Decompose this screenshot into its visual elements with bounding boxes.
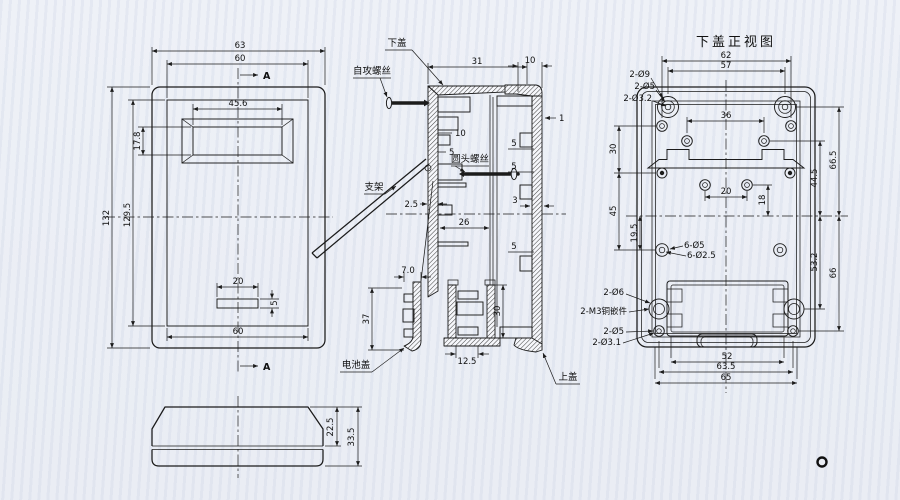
dim-45: 45 (609, 206, 619, 217)
label-bracket: 支架 (364, 181, 384, 193)
dim-45-6: 45.6 (229, 99, 248, 109)
dim-22-5: 22.5 (326, 418, 336, 437)
front-view: 63 60 A 45.6 17.8 132 129.5 20 5 60 (102, 41, 333, 374)
dim-66: 66 (829, 268, 839, 279)
dim-52: 52 (722, 352, 733, 362)
dim-33-5: 33.5 (347, 428, 357, 447)
label-6d25: 6-Ø2.5 (687, 250, 716, 261)
label-bottom-cover: 下盖 (387, 37, 407, 49)
enclosure-inner-outline (167, 100, 308, 326)
dim-57: 57 (721, 61, 732, 71)
dim-17-8: 17.8 (133, 132, 143, 151)
dim-37: 37 (362, 314, 372, 325)
dim-30-section: 30 (493, 306, 503, 317)
dim-63-5: 63.5 (717, 362, 736, 372)
label-2d32: 2-Ø3.2 (623, 93, 652, 104)
display-window-inner (193, 127, 282, 155)
bottom-view-title: 下盖正视图 (696, 35, 776, 50)
dim-44-5: 44.5 (810, 169, 820, 188)
label-round-head-screw: 圆头螺丝 (451, 153, 489, 165)
label-self-tapping-screw: 自攻螺丝 (353, 65, 391, 77)
dim-26: 26 (459, 218, 470, 228)
dim-132: 132 (102, 210, 112, 226)
section-view: 下盖 31 自攻螺丝 10 5 圆头螺丝 支架 2.5 26 7.0 37 电池… (312, 37, 580, 384)
dim-tc-10: 10 (525, 56, 536, 66)
dim-tc-1: 1 (559, 114, 564, 124)
label-2m3-insert: 2-M3铜嵌件 (580, 306, 627, 317)
dim-slot-5: 5 (270, 300, 280, 305)
label-top-cover: 上盖 (558, 371, 578, 383)
dim-63: 63 (235, 41, 246, 51)
section-marker-a-bottom: A (263, 362, 271, 373)
o-ring-mark (818, 458, 827, 467)
bottom-cover-front-view: 下盖正视图 (580, 35, 848, 393)
label-2d6: 2-Ø6 (603, 287, 624, 298)
dim-60-bottom: 60 (233, 327, 244, 337)
label-battery-cover: 电池盖 (342, 359, 371, 371)
dim-31: 31 (472, 57, 483, 67)
side-profile-top-outline (152, 407, 323, 446)
side-profile-bottom-outline (152, 450, 323, 467)
label-6d5: 6-Ø5 (684, 240, 705, 251)
dim-wall-2-5: 2.5 (404, 200, 418, 210)
dim-62: 62 (721, 51, 732, 61)
label-2d31: 2-Ø3.1 (592, 337, 621, 348)
technical-drawing: 63 60 A 45.6 17.8 132 129.5 20 5 60 (0, 0, 900, 500)
label-2d5b: 2-Ø5 (603, 326, 624, 337)
battery-opening (667, 281, 788, 336)
section-marker-a-top: A (263, 71, 271, 82)
screw-bosses-and-holes (649, 97, 804, 337)
drawing-sheet: 63 60 A 45.6 17.8 132 129.5 20 5 60 (0, 0, 900, 500)
battery-compartment-section (444, 280, 500, 346)
dim-tc-3: 3 (512, 196, 517, 206)
dim-20: 20 (721, 187, 732, 197)
label-2d5: 2-Ø5 (634, 81, 655, 92)
top-cover-section (497, 85, 542, 352)
enclosure-outer-outline (152, 87, 325, 348)
dim-tc-5a: 5 (511, 139, 516, 149)
dim-36: 36 (721, 111, 732, 121)
dim-129-5: 129.5 (123, 203, 133, 227)
dim-60-top: 60 (235, 54, 246, 64)
bottom-cover-wall (428, 86, 438, 297)
side-profile-view: 22.5 33.5 (152, 396, 362, 478)
dim-boss-10: 10 (455, 129, 466, 139)
slot-outline (217, 299, 258, 308)
battery-cover-section (403, 282, 421, 351)
dim-53-2: 53.2 (810, 253, 820, 272)
dim-66-5: 66.5 (829, 151, 839, 170)
dim-tc-5c: 5 (511, 242, 516, 252)
dim-65: 65 (721, 373, 732, 383)
dim-7-0: 7.0 (401, 266, 415, 276)
label-2d9: 2-Ø9 (629, 69, 650, 80)
flip-stand-bracket (312, 159, 433, 281)
dim-30-left: 30 (609, 144, 619, 155)
display-window-outer (182, 119, 293, 163)
dim-12-5: 12.5 (458, 357, 477, 367)
dim-18: 18 (758, 195, 768, 206)
self-tapping-screw (386, 97, 430, 108)
dim-19-5: 19.5 (630, 224, 640, 243)
dim-slot-20: 20 (233, 277, 244, 287)
dim-tc-5b: 5 (511, 162, 516, 172)
